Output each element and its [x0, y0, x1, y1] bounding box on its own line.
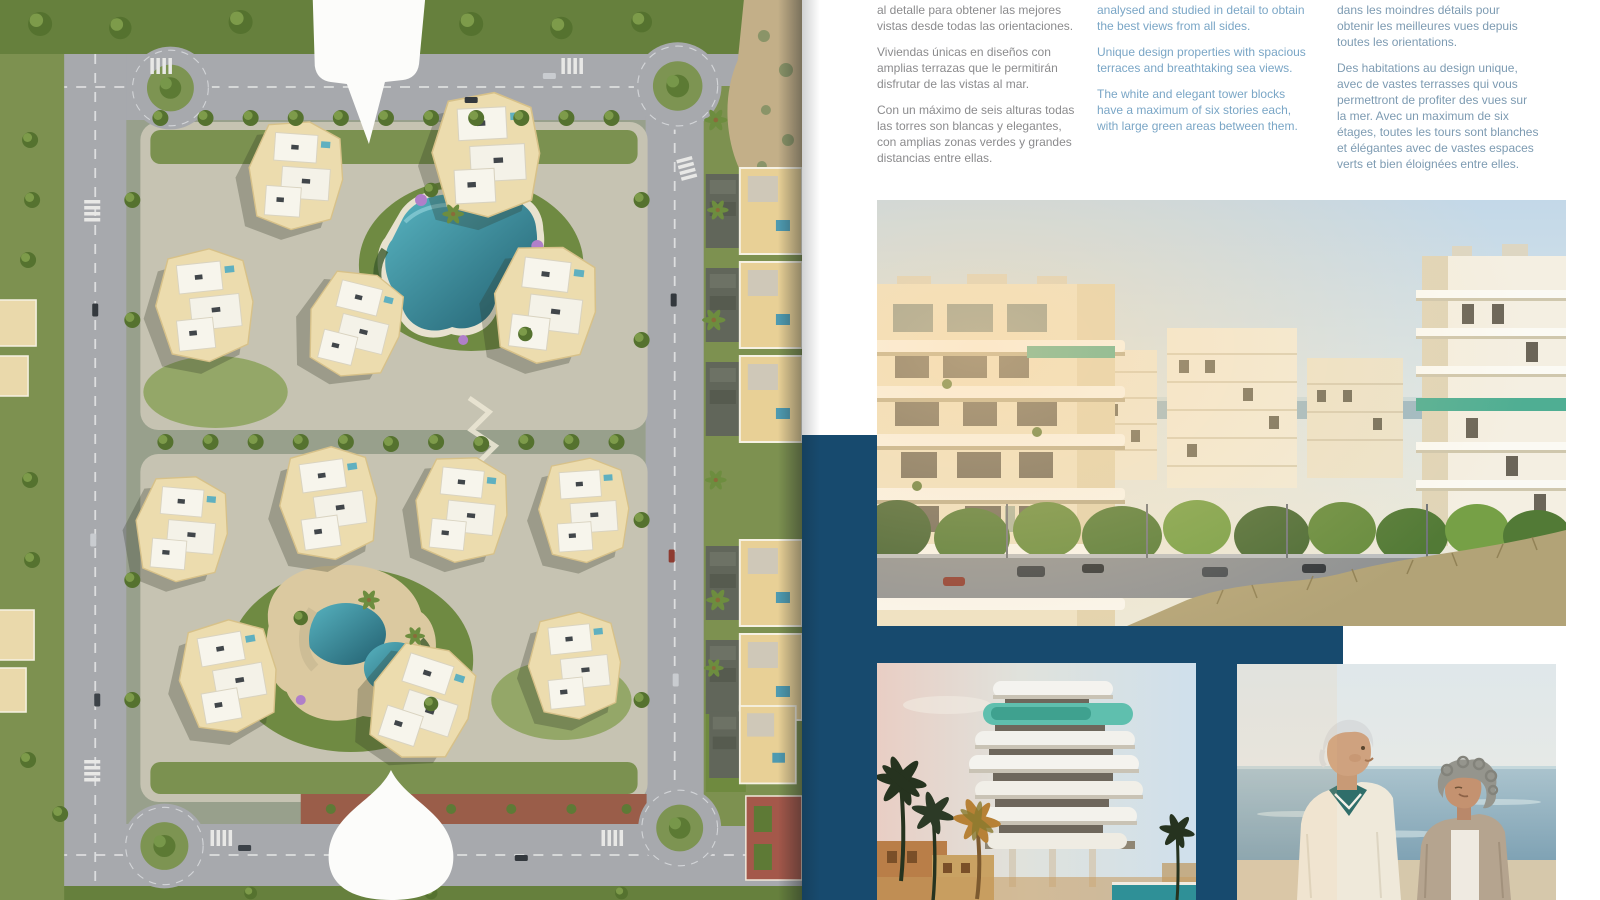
masterplan-aerial-map	[0, 0, 802, 900]
paragraph: analysed and studied in detail to obtain…	[1097, 2, 1321, 34]
paragraph: dans les moindres détails pour obtenir l…	[1337, 2, 1557, 50]
page-curl-shadow	[778, 0, 802, 900]
text-column-spanish: al detalle para obtener las mejores vist…	[877, 2, 1083, 176]
text-column-french: dans les moindres détails pour obtenir l…	[1337, 2, 1557, 182]
paragraph: al detalle para obtener las mejores vist…	[877, 2, 1083, 34]
paragraph: Viviendas únicas en diseños con amplias …	[877, 44, 1083, 92]
masterplan-map-illustration	[0, 0, 802, 900]
paragraph: The white and elegant tower blocks have …	[1097, 86, 1321, 134]
paragraph: Con un máximo de seis alturas todas las …	[877, 102, 1083, 166]
paragraph: Des habitations au design unique, avec d…	[1337, 60, 1557, 172]
tower-closeup-dusk-photo	[877, 663, 1196, 900]
senior-couple-beach-photo	[1237, 664, 1556, 900]
residential-towers-street-photo	[877, 200, 1566, 626]
paragraph: Unique design properties with spacious t…	[1097, 44, 1321, 76]
text-column-english: analysed and studied in detail to obtain…	[1097, 2, 1321, 144]
brochure-spread: al detalle para obtener las mejores vist…	[0, 0, 1600, 900]
